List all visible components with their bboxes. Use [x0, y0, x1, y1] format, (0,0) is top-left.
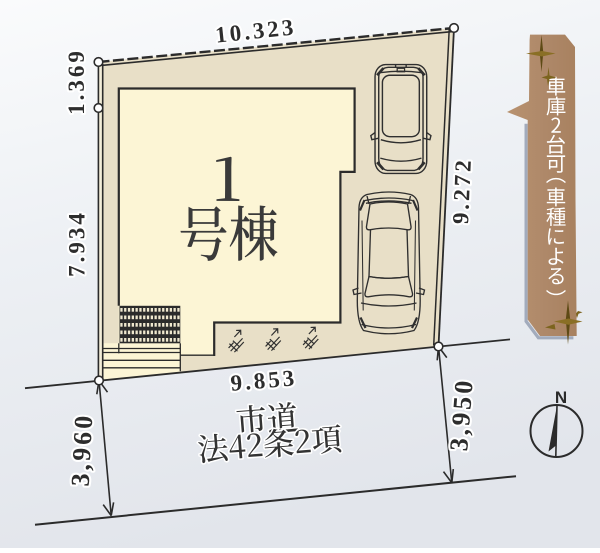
svg-text:9.272: 9.272 — [448, 157, 476, 225]
svg-text:N: N — [555, 388, 567, 407]
svg-text:3,960: 3,960 — [66, 412, 99, 487]
svg-text:7.934: 7.934 — [65, 210, 90, 277]
svg-text:1.369: 1.369 — [64, 48, 89, 115]
svg-text:3,950: 3,950 — [444, 377, 479, 453]
